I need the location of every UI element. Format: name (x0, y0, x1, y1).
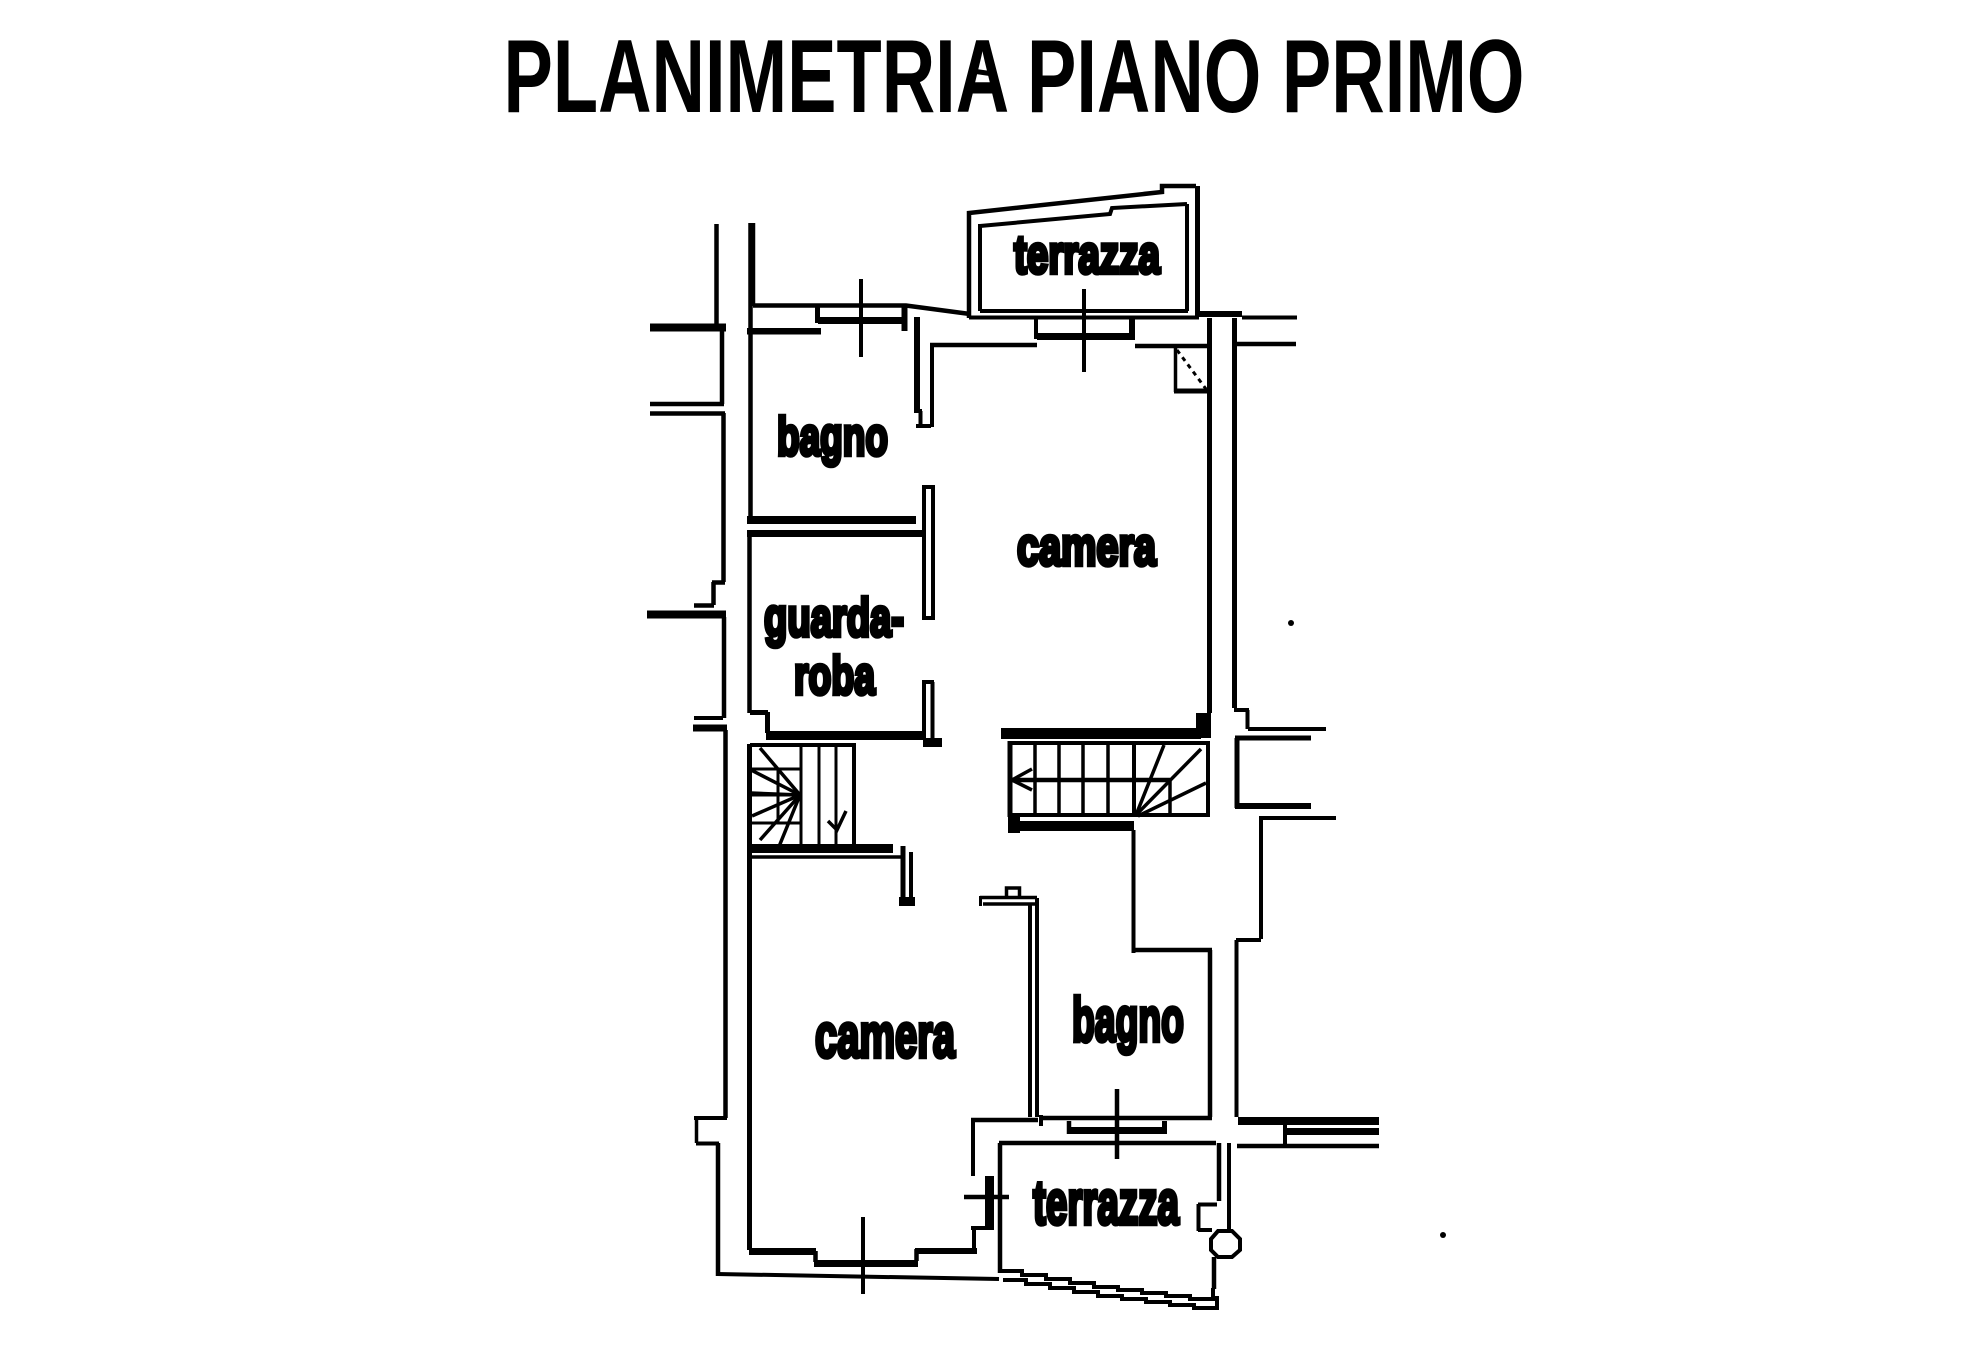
svg-text:terrazza: terrazza (1014, 225, 1161, 285)
svg-text:guarda-: guarda- (764, 588, 904, 648)
svg-text:roba: roba (794, 646, 876, 706)
svg-text:camera: camera (815, 1002, 955, 1071)
svg-text:bagno: bagno (1072, 986, 1184, 1055)
svg-text:camera: camera (1017, 517, 1157, 577)
svg-text:terrazza: terrazza (1033, 1169, 1179, 1238)
svg-text:bagno: bagno (777, 407, 888, 467)
svg-text:PLANIMETRIA PIANO PRIMO: PLANIMETRIA PIANO PRIMO (504, 19, 1525, 135)
